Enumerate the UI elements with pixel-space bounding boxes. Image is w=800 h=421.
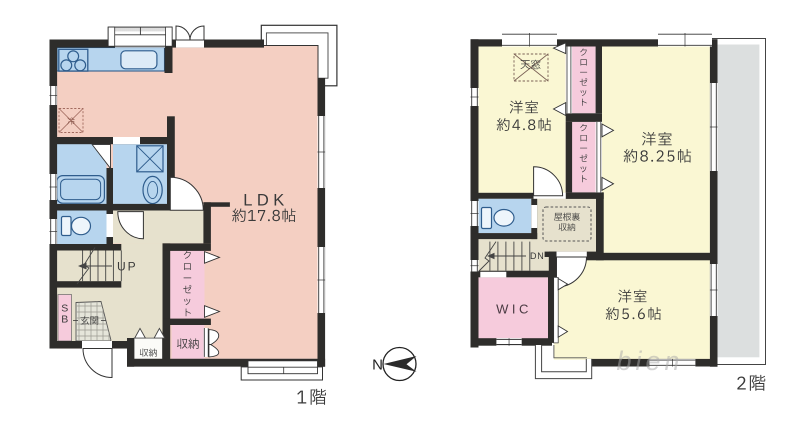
svg-text:DN: DN — [530, 251, 545, 261]
svg-text:N: N — [372, 357, 383, 374]
svg-text:WIC: WIC — [496, 302, 532, 317]
svg-text:B: B — [61, 314, 68, 326]
svg-text:bien: bien — [616, 346, 683, 376]
svg-text:LDK: LDK — [243, 192, 289, 210]
svg-text:UP: UP — [117, 260, 138, 274]
